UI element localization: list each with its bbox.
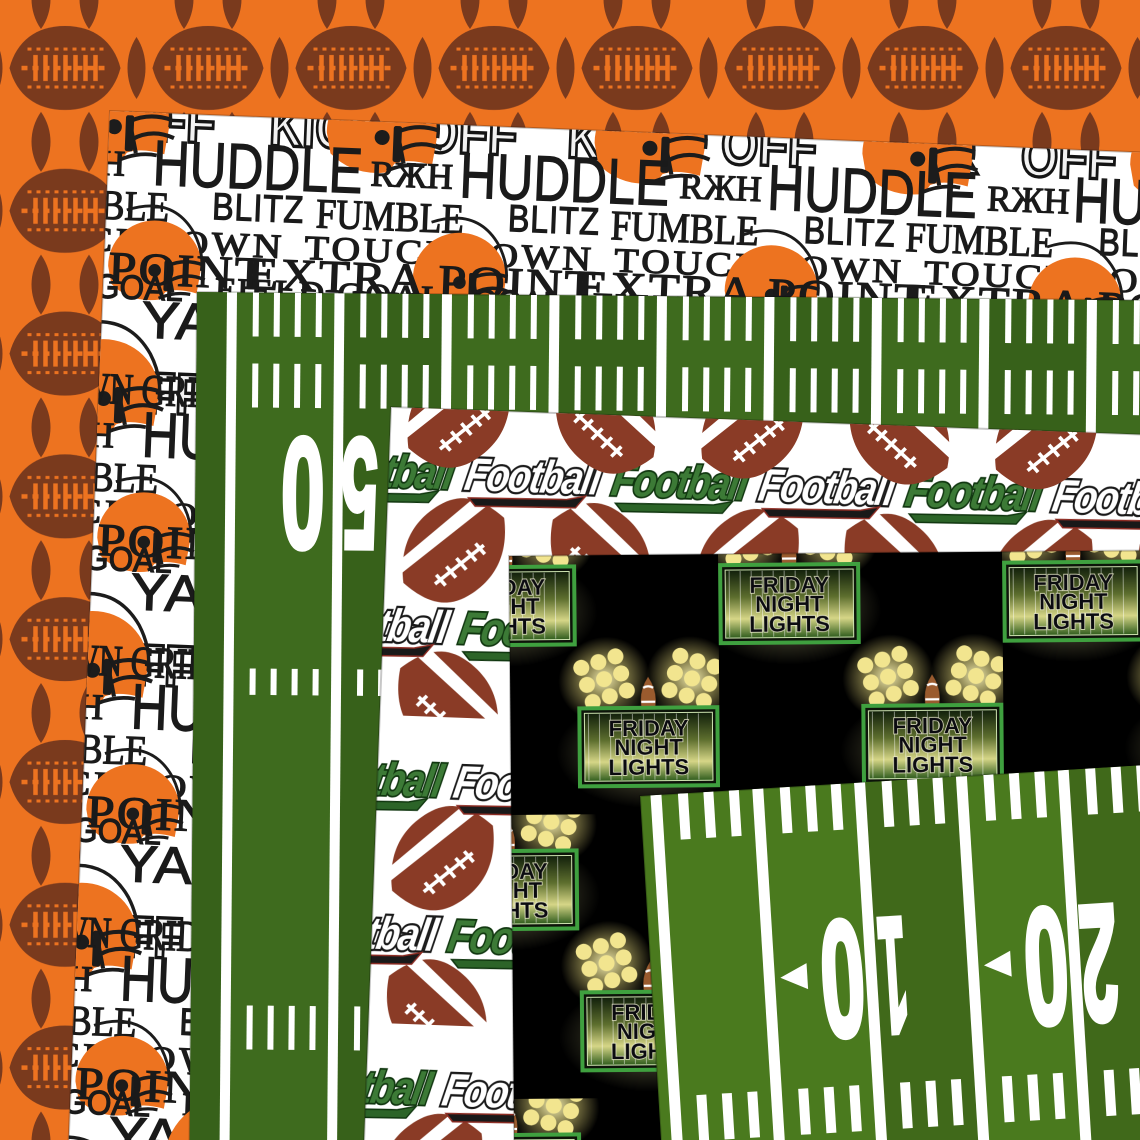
svg-text:5: 5: [340, 405, 379, 581]
svg-text:0: 0: [280, 405, 326, 581]
